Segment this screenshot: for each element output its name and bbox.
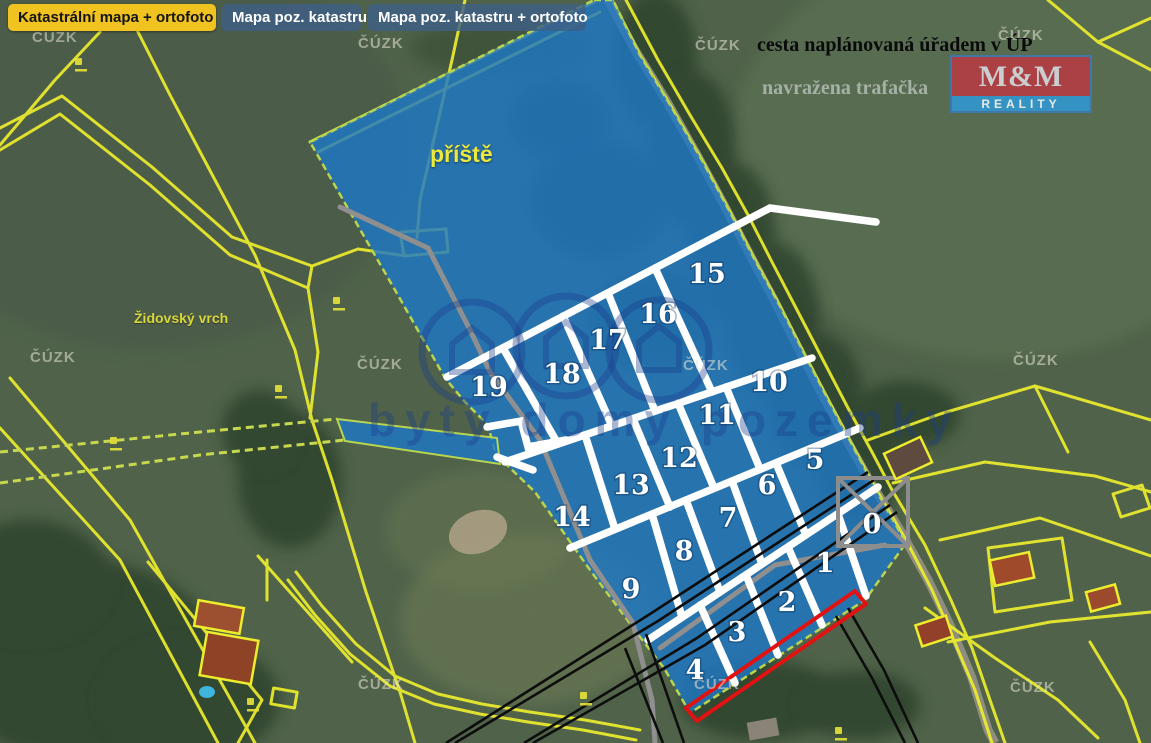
plot-number: 3 — [728, 617, 747, 648]
plot-number: 15 — [688, 259, 726, 290]
tab-cadastral-ortofoto[interactable]: Katastrální mapa + ortofoto — [8, 4, 216, 31]
cuzk-watermark: ČÚZK — [357, 355, 403, 373]
plot-number: 10 — [750, 367, 788, 398]
plot-number: 16 — [639, 299, 677, 330]
plot-number: 19 — [470, 372, 508, 403]
plot-number: 9 — [622, 574, 641, 605]
plot-number: 1 — [816, 548, 835, 579]
plot-number: 7 — [719, 503, 738, 534]
plot-number: 11 — [698, 400, 736, 431]
plot-number: 18 — [543, 359, 581, 390]
cuzk-watermark: ČÚZK — [358, 675, 404, 693]
cuzk-watermark: ČÚZK — [695, 36, 741, 54]
plot-number: 6 — [758, 470, 777, 501]
logo-bottom-text: REALITY — [981, 98, 1060, 110]
tab-land-cadastre[interactable]: Mapa poz. katastru — [222, 4, 361, 31]
planned-road-note: cesta naplánovaná úřadem v ÚP — [757, 34, 1033, 57]
cuzk-watermark: ČÚZK — [683, 356, 729, 374]
cuzk-watermark: ČÚZK — [1010, 678, 1056, 696]
logo-top-text: M&M — [979, 62, 1064, 92]
plot-number: 8 — [675, 536, 694, 567]
transformer-note: navražena trafačka — [762, 77, 928, 100]
cuzk-watermark: ČÚZK — [30, 348, 76, 366]
hill-name-label: Židovský vrch — [134, 310, 228, 326]
portal-watermark-text: byty domy pozemky — [368, 394, 961, 446]
plot-number: 12 — [660, 443, 698, 474]
plot-number: 17 — [589, 325, 627, 356]
mm-reality-logo: M&M REALITY — [950, 55, 1092, 113]
cuzk-watermark: ČÚZK — [1013, 351, 1059, 369]
tab-land-cadastre-ortofoto[interactable]: Mapa poz. katastru + ortofoto — [368, 4, 586, 31]
plot-number: 14 — [553, 502, 591, 533]
map-viewport[interactable]: byty domy pozemky ČÚZKČÚZKČÚZKČÚZKČÚZKČÚ… — [0, 0, 1151, 743]
plot-number: 5 — [806, 445, 825, 476]
cuzk-watermark: ČÚZK — [358, 34, 404, 52]
portal-watermark: byty domy pozemky — [368, 394, 961, 446]
future-area-label: příště — [430, 141, 493, 168]
plot-number: 2 — [778, 587, 797, 618]
plot-number: 0 — [863, 509, 882, 540]
pool — [199, 686, 215, 698]
plot-number: 13 — [612, 470, 650, 501]
plot-number: 4 — [686, 655, 705, 686]
